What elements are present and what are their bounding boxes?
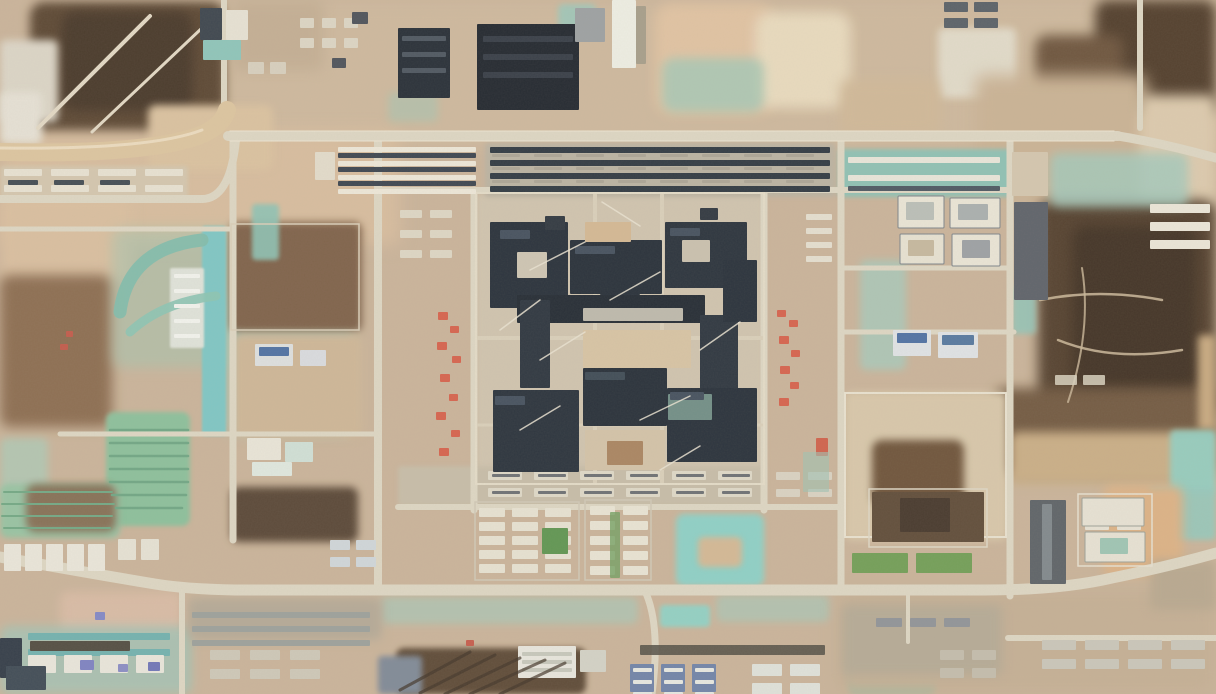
satellite-photo: [0, 0, 1216, 694]
screenshot-root: [0, 0, 1216, 694]
haze-overlay: [0, 0, 1216, 694]
